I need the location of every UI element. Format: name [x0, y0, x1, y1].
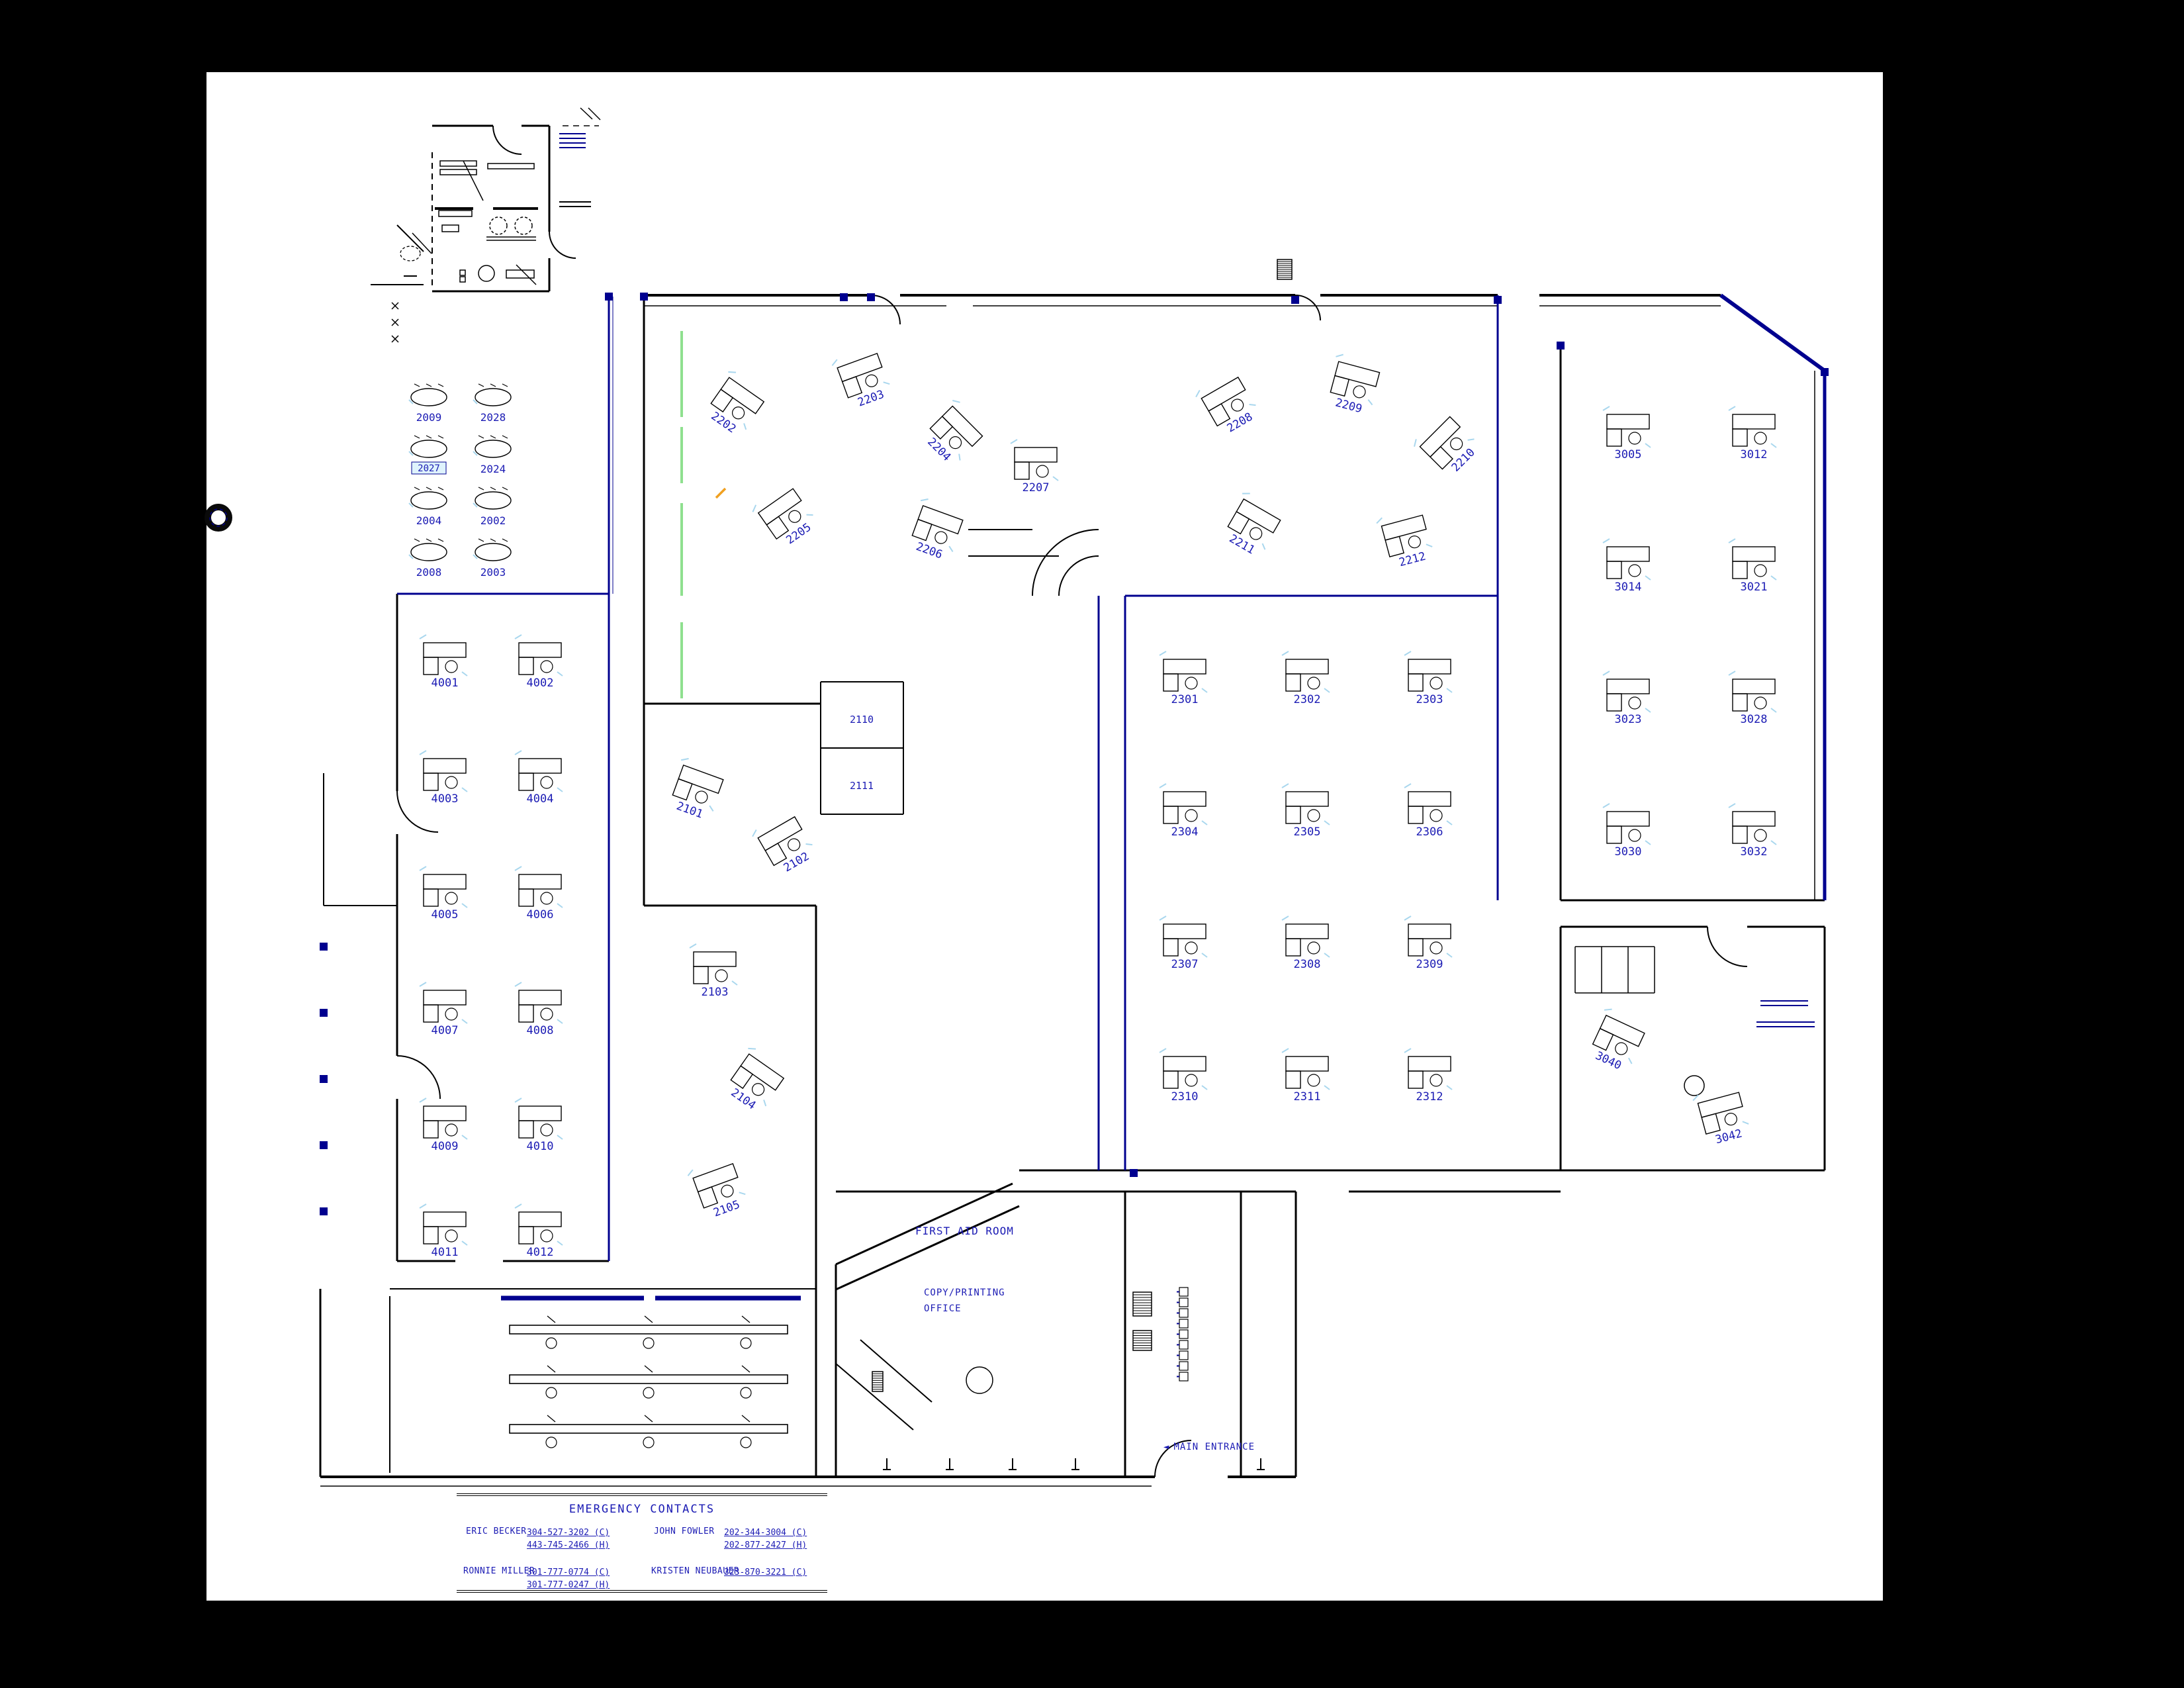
- contact-phone: 202-344-3004 (C): [724, 1526, 807, 1539]
- svg-text:2111: 2111: [850, 780, 874, 792]
- svg-text:2309: 2309: [1416, 958, 1443, 971]
- svg-text:2301: 2301: [1171, 693, 1199, 706]
- svg-text:4005: 4005: [432, 908, 459, 921]
- svg-text:4004: 4004: [527, 792, 554, 806]
- contact-phones: 202-344-3004 (C) 202-877-2427 (H): [724, 1526, 807, 1552]
- svg-text:2028: 2028: [480, 411, 506, 424]
- svg-text:3014: 3014: [1615, 581, 1642, 594]
- svg-text:2305: 2305: [1294, 825, 1321, 839]
- svg-text:4003: 4003: [432, 792, 459, 806]
- svg-text:2303: 2303: [1416, 693, 1443, 706]
- contact-phone: 301-777-0774 (C): [527, 1566, 610, 1579]
- legend-title: EMERGENCY CONTACTS: [457, 1503, 827, 1516]
- svg-text:3005: 3005: [1615, 448, 1642, 461]
- main-entrance-label: ◄MAIN ENTRANCE: [1163, 1442, 1255, 1452]
- floor-plan-svg: 2009202820272024200420022008200322022203…: [0, 0, 2184, 1688]
- svg-text:4009: 4009: [432, 1140, 459, 1153]
- svg-text:2024: 2024: [480, 463, 506, 475]
- svg-text:2306: 2306: [1416, 825, 1443, 839]
- svg-text:2002: 2002: [480, 514, 506, 527]
- svg-text:3023: 3023: [1615, 713, 1642, 726]
- svg-text:2312: 2312: [1416, 1090, 1443, 1103]
- contact-phone: 202-877-2427 (H): [724, 1539, 807, 1552]
- svg-text:2302: 2302: [1294, 693, 1321, 706]
- svg-text:2027: 2027: [418, 463, 440, 474]
- contact-phones: 304-527-3202 (C) 443-745-2466 (H): [527, 1526, 610, 1552]
- svg-text:3021: 3021: [1741, 581, 1768, 594]
- first-aid-room-label: FIRST AID ROOM: [915, 1225, 1014, 1237]
- left-arrow-icon: ◄: [1163, 1442, 1169, 1452]
- svg-text:2004: 2004: [416, 514, 442, 527]
- contact-phone: 443-745-2466 (H): [527, 1539, 610, 1552]
- svg-text:2310: 2310: [1171, 1090, 1199, 1103]
- copy-printing-office-label: OFFICE: [924, 1303, 962, 1314]
- contact-phone: 323-870-3221 (C): [724, 1566, 807, 1579]
- svg-text:4002: 4002: [527, 677, 554, 690]
- svg-text:4010: 4010: [527, 1140, 554, 1153]
- svg-text:2311: 2311: [1294, 1090, 1321, 1103]
- copy-printing-label: COPY/PRINTING: [924, 1288, 1005, 1298]
- svg-text:3032: 3032: [1741, 845, 1768, 859]
- svg-text:3030: 3030: [1615, 845, 1642, 859]
- svg-text:3012: 3012: [1741, 448, 1768, 461]
- svg-text:4006: 4006: [527, 908, 554, 921]
- svg-text:4001: 4001: [432, 677, 459, 690]
- svg-text:2103: 2103: [702, 986, 729, 999]
- svg-text:4011: 4011: [432, 1246, 459, 1259]
- contact-phone: 304-527-3202 (C): [527, 1526, 610, 1539]
- svg-text:4008: 4008: [527, 1024, 554, 1037]
- emergency-contacts-legend: EMERGENCY CONTACTS ERIC BECKER 304-527-3…: [457, 1493, 827, 1593]
- contact-phones: 301-777-0774 (C) 301-777-0247 (H): [527, 1566, 610, 1591]
- svg-text:2003: 2003: [480, 566, 506, 579]
- svg-text:4012: 4012: [527, 1246, 554, 1259]
- svg-text:4007: 4007: [432, 1024, 459, 1037]
- svg-text:3028: 3028: [1741, 713, 1768, 726]
- svg-text:2008: 2008: [416, 566, 442, 579]
- contact-name: RONNIE MILLER: [463, 1566, 535, 1576]
- svg-text:2304: 2304: [1171, 825, 1199, 839]
- contact-name: JOHN FOWLER: [654, 1526, 715, 1536]
- contact-phone: 301-777-0247 (H): [527, 1579, 610, 1591]
- svg-text:2308: 2308: [1294, 958, 1321, 971]
- contact-name: ERIC BECKER: [466, 1526, 527, 1536]
- main-entrance-text: MAIN ENTRANCE: [1173, 1442, 1255, 1452]
- svg-text:2207: 2207: [1023, 481, 1050, 494]
- svg-text:2110: 2110: [850, 714, 874, 726]
- svg-text:2307: 2307: [1171, 958, 1199, 971]
- svg-text:2009: 2009: [416, 411, 442, 424]
- contact-phones: 323-870-3221 (C): [724, 1566, 807, 1579]
